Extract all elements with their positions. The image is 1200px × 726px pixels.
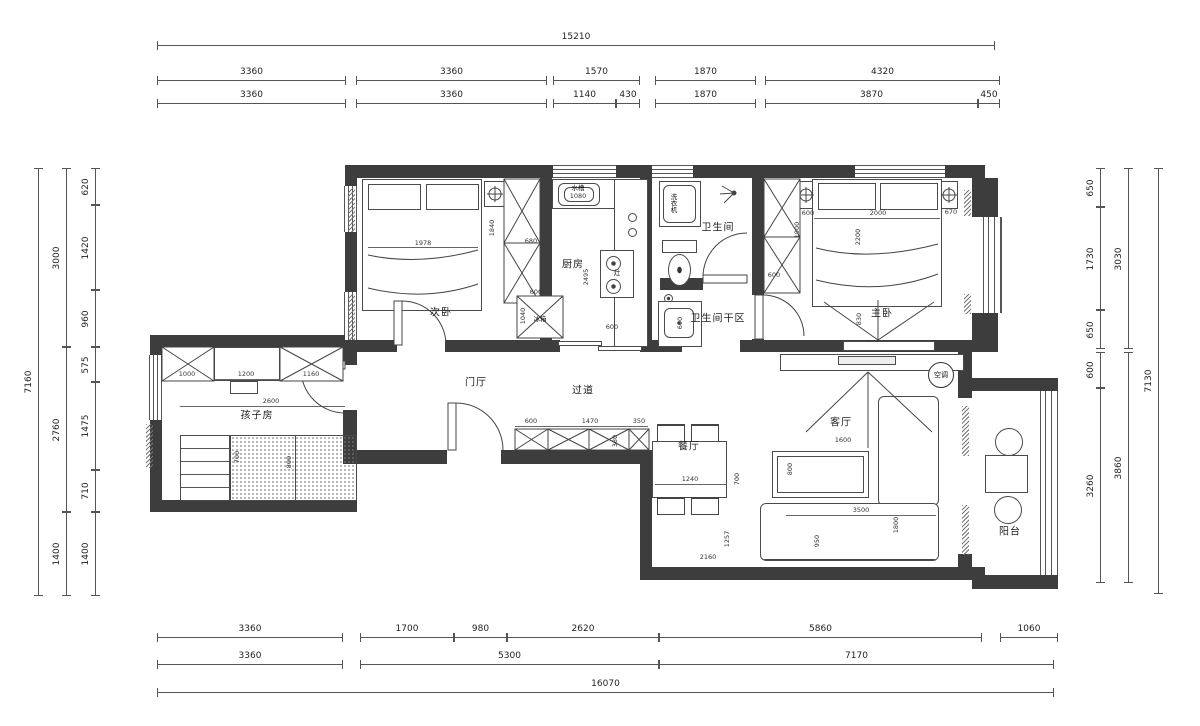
dimension-tick: [91, 168, 100, 169]
dimension-tick: [62, 512, 71, 513]
dimension-tick: [639, 99, 640, 108]
dimension-line: [553, 80, 640, 81]
dimension-line: [360, 637, 454, 638]
dimension-tick: [616, 99, 617, 108]
dimension-tick: [34, 595, 43, 596]
dimension-tick: [999, 99, 1000, 108]
dimension-line: [95, 290, 96, 347]
dimension-tick: [1124, 352, 1133, 353]
dimension-label: 1870: [694, 90, 717, 100]
dimension-tick: [1096, 168, 1105, 169]
dimension-label: 3030: [1114, 247, 1124, 270]
dimension-label: 15210: [562, 32, 591, 42]
dimension-line: [1128, 352, 1129, 583]
dimension-label: 7130: [1144, 370, 1154, 393]
dimension-tick: [659, 660, 660, 669]
dimension-tick: [34, 168, 43, 169]
dimension-label: 5860: [809, 624, 832, 634]
dimension-line: [95, 512, 96, 596]
dimension-label: 3360: [440, 67, 463, 77]
dimension-tick: [755, 99, 756, 108]
dimension-label: 3360: [440, 90, 463, 100]
dimension-line: [507, 637, 659, 638]
dimension-label: 1870: [694, 67, 717, 77]
dimension-label: 650: [1086, 321, 1096, 338]
dimension-label: 710: [81, 482, 91, 499]
dimension-line: [95, 382, 96, 470]
dimension-label: 1400: [52, 543, 62, 566]
dimension-tick: [62, 595, 71, 596]
dimension-line: [1100, 168, 1101, 207]
dimension-label: 2620: [572, 624, 595, 634]
dimension-label: 3870: [860, 90, 883, 100]
dimension-tick: [1154, 168, 1163, 169]
dimension-label: 1140: [573, 90, 596, 100]
dimension-label: 4320: [871, 67, 894, 77]
dimension-line: [66, 168, 67, 347]
dimension-tick: [91, 347, 100, 348]
dimension-label: 3360: [239, 624, 262, 634]
dimension-tick: [62, 168, 71, 169]
dimension-tick: [1096, 582, 1105, 583]
dimension-line: [157, 664, 343, 665]
dimension-label: 575: [81, 356, 91, 373]
dimension-tick: [356, 99, 357, 108]
dimension-label: 430: [619, 90, 636, 100]
dimension-label: 1730: [1086, 247, 1096, 270]
dimension-line: [356, 80, 547, 81]
dimension-label: 3360: [240, 90, 263, 100]
dimension-line: [66, 347, 67, 512]
dimension-line: [95, 347, 96, 382]
dimension-line: [1000, 637, 1058, 638]
dimension-tick: [1057, 633, 1058, 642]
dimension-tick: [157, 688, 158, 697]
dimension-tick: [1124, 582, 1133, 583]
dimension-label: 5300: [498, 651, 521, 661]
dimension-line: [659, 637, 982, 638]
dimension-label: 1400: [81, 543, 91, 566]
dimension-line: [1100, 388, 1101, 583]
dimension-label: 620: [81, 178, 91, 195]
dimension-tick: [1096, 207, 1105, 208]
dimension-tick: [1096, 352, 1105, 353]
dimensions-layer: 1521033603360157018704320336033601140430…: [0, 0, 1200, 726]
dimension-tick: [546, 76, 547, 85]
dimension-tick: [1096, 310, 1105, 311]
dimension-tick: [765, 99, 766, 108]
dimension-label: 16070: [591, 679, 620, 689]
dimension-line: [157, 692, 1054, 693]
dimension-line: [95, 205, 96, 290]
dimension-tick: [639, 76, 640, 85]
dimension-label: 3260: [1086, 474, 1096, 497]
dimension-label: 1420: [81, 236, 91, 259]
dimension-line: [655, 80, 756, 81]
dimension-tick: [1154, 593, 1163, 594]
dimension-label: 960: [81, 310, 91, 327]
dimension-tick: [755, 76, 756, 85]
dimension-tick: [659, 633, 660, 642]
dimension-line: [1100, 352, 1101, 388]
dimension-label: 3000: [52, 246, 62, 269]
dimension-tick: [91, 290, 100, 291]
dimension-label: 7160: [24, 371, 34, 394]
dimension-line: [356, 103, 547, 104]
dimension-tick: [342, 660, 343, 669]
dimension-line: [1128, 168, 1129, 349]
dimension-tick: [553, 76, 554, 85]
dimension-tick: [345, 76, 346, 85]
dimension-tick: [62, 347, 71, 348]
dimension-tick: [978, 99, 979, 108]
dimension-tick: [356, 76, 357, 85]
dimension-tick: [91, 470, 100, 471]
dimension-tick: [1000, 633, 1001, 642]
dimension-line: [157, 103, 346, 104]
dimension-line: [95, 470, 96, 512]
dimension-tick: [157, 633, 158, 642]
dimension-tick: [91, 512, 100, 513]
dimension-line: [360, 664, 659, 665]
dimension-line: [978, 103, 1000, 104]
dimension-tick: [999, 76, 1000, 85]
dimension-tick: [345, 99, 346, 108]
dimension-line: [66, 512, 67, 596]
dimension-line: [38, 168, 39, 596]
dimension-label: 1475: [81, 415, 91, 438]
dimension-label: 1060: [1018, 624, 1041, 634]
dimension-line: [157, 80, 346, 81]
dimension-line: [157, 45, 995, 46]
dimension-label: 450: [980, 90, 997, 100]
dimension-label: 3360: [240, 67, 263, 77]
dimension-line: [95, 168, 96, 205]
dimension-tick: [655, 99, 656, 108]
dimension-label: 3860: [1114, 456, 1124, 479]
floor-plan-canvas: 次卧厨房卫生间卫生间干区主卧孩子房门厅过道餐厅客厅阳台水槽洗衣机冰箱灶空调197…: [0, 0, 1200, 726]
dimension-label: 2760: [52, 418, 62, 441]
dimension-tick: [655, 76, 656, 85]
dimension-line: [553, 103, 616, 104]
dimension-tick: [994, 41, 995, 50]
dimension-line: [454, 637, 507, 638]
dimension-tick: [1096, 388, 1105, 389]
dimension-label: 600: [1086, 361, 1096, 378]
dimension-tick: [91, 382, 100, 383]
dimension-tick: [765, 76, 766, 85]
dimension-tick: [981, 633, 982, 642]
dimension-line: [616, 103, 640, 104]
dimension-tick: [157, 41, 158, 50]
dimension-tick: [553, 99, 554, 108]
dimension-line: [765, 80, 1000, 81]
dimension-tick: [1124, 168, 1133, 169]
dimension-label: 650: [1086, 179, 1096, 196]
dimension-tick: [507, 633, 508, 642]
dimension-line: [157, 637, 343, 638]
dimension-tick: [157, 99, 158, 108]
dimension-label: 3360: [239, 651, 262, 661]
dimension-tick: [360, 633, 361, 642]
dimension-label: 1700: [396, 624, 419, 634]
dimension-line: [1100, 207, 1101, 310]
dimension-tick: [454, 633, 455, 642]
dimension-line: [655, 103, 756, 104]
dimension-tick: [157, 76, 158, 85]
dimension-line: [1158, 168, 1159, 594]
dimension-line: [765, 103, 978, 104]
dimension-tick: [1096, 348, 1105, 349]
dimension-tick: [1124, 348, 1133, 349]
dimension-tick: [546, 99, 547, 108]
dimension-line: [1100, 310, 1101, 349]
dimension-line: [659, 664, 1054, 665]
dimension-tick: [157, 660, 158, 669]
dimension-label: 7170: [845, 651, 868, 661]
dimension-tick: [360, 660, 361, 669]
dimension-label: 980: [472, 624, 489, 634]
dimension-tick: [1053, 688, 1054, 697]
dimension-tick: [91, 595, 100, 596]
dimension-tick: [342, 633, 343, 642]
dimension-tick: [1053, 660, 1054, 669]
dimension-label: 1570: [585, 67, 608, 77]
dimension-tick: [91, 205, 100, 206]
